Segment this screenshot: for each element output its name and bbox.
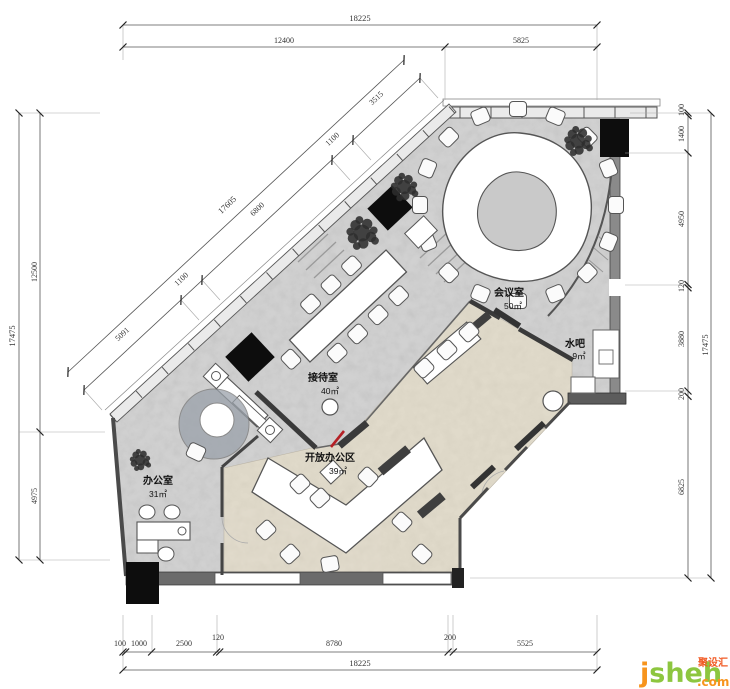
chair-icon <box>320 555 339 573</box>
floor-plan-canvas: 18225 12400 5825 100 1000 2500 120 8780 … <box>0 0 730 689</box>
room-label-open-office: 开放办公区 <box>305 451 355 464</box>
round-column <box>322 399 338 415</box>
dim-right-seg: 100 <box>677 104 686 116</box>
room-area-reception: 40㎡ <box>321 386 339 396</box>
dim-right-seg: 4950 <box>677 211 686 227</box>
room-area-office: 31㎡ <box>149 489 167 499</box>
right-wall-door-gap <box>609 279 621 296</box>
dim-bottom-seg: 1000 <box>131 639 147 648</box>
dim-bottom-seg: 2500 <box>176 639 192 648</box>
dim-bottom-seg: 120 <box>212 633 224 642</box>
office-desk-return <box>137 540 158 553</box>
dim-diagonal-seg: 1100 <box>323 131 341 148</box>
bottom-window-1 <box>215 573 300 584</box>
dim-top-seg: 5825 <box>513 36 529 45</box>
logo-j: j <box>639 658 649 689</box>
watermark-logo: jsheh .com 聚设汇 <box>639 656 729 689</box>
dim-bottom-seg: 5525 <box>517 639 533 648</box>
dim-right-seg: 120 <box>677 280 686 292</box>
dim-bottom-total: 18225 <box>349 658 370 668</box>
dim-bottom-seg: 8780 <box>326 639 342 648</box>
water-bar-counter <box>593 330 619 378</box>
room-area-conference: 50㎡ <box>504 301 522 311</box>
dim-left-total: 17475 <box>7 325 17 346</box>
office-chair <box>164 505 180 519</box>
dim-top-seg: 12400 <box>274 36 294 45</box>
chair-icon <box>609 197 624 214</box>
room-area-open-office: 39㎡ <box>329 466 347 476</box>
office-desk <box>137 522 190 540</box>
dim-left-seg: 12500 <box>30 262 39 282</box>
dim-diagonal-seg: 5091 <box>113 325 131 342</box>
dim-bottom-seg: 200 <box>444 633 456 642</box>
dim-left-seg: 4975 <box>30 488 39 504</box>
floor-plan-page: 18225 12400 5825 100 1000 2500 120 8780 … <box>0 0 730 689</box>
office-chair <box>139 505 155 519</box>
chair-icon <box>413 197 428 214</box>
dim-right-seg: 1400 <box>677 126 686 142</box>
room-label-water-bar: 水吧 <box>564 337 585 350</box>
water-bar-cabinet <box>571 377 595 393</box>
dim-diagonal-total: 17605 <box>216 194 238 216</box>
room-label-reception: 接待室 <box>308 371 338 384</box>
bottom-right-wall <box>568 393 626 404</box>
wall-end-cap <box>452 568 464 588</box>
dim-diagonal-seg: 1100 <box>172 271 190 288</box>
dim-right-seg: 6825 <box>677 479 686 495</box>
room-label-conference: 会议室 <box>494 286 524 299</box>
round-column <box>543 391 563 411</box>
bottom-window-2 <box>383 573 451 584</box>
dim-diagonal-seg: 6800 <box>248 200 266 217</box>
dim-right-seg: 200 <box>677 388 686 400</box>
dim-bottom-seg: 100 <box>114 639 126 648</box>
room-area-water-bar: 9㎡ <box>572 351 586 361</box>
logo-tld: .com <box>697 675 729 689</box>
office-chair <box>158 547 174 561</box>
dim-top-total: 18225 <box>349 13 370 23</box>
dim-right-total: 17475 <box>700 334 710 355</box>
round-coffee-table <box>200 403 234 437</box>
room-label-office: 办公室 <box>143 474 173 487</box>
column <box>126 562 159 604</box>
column <box>600 119 629 157</box>
logo-cn: 聚设汇 <box>697 656 728 669</box>
dim-right-seg: 3880 <box>677 331 686 347</box>
chair-icon <box>510 102 527 117</box>
parapet-strip <box>443 99 660 106</box>
